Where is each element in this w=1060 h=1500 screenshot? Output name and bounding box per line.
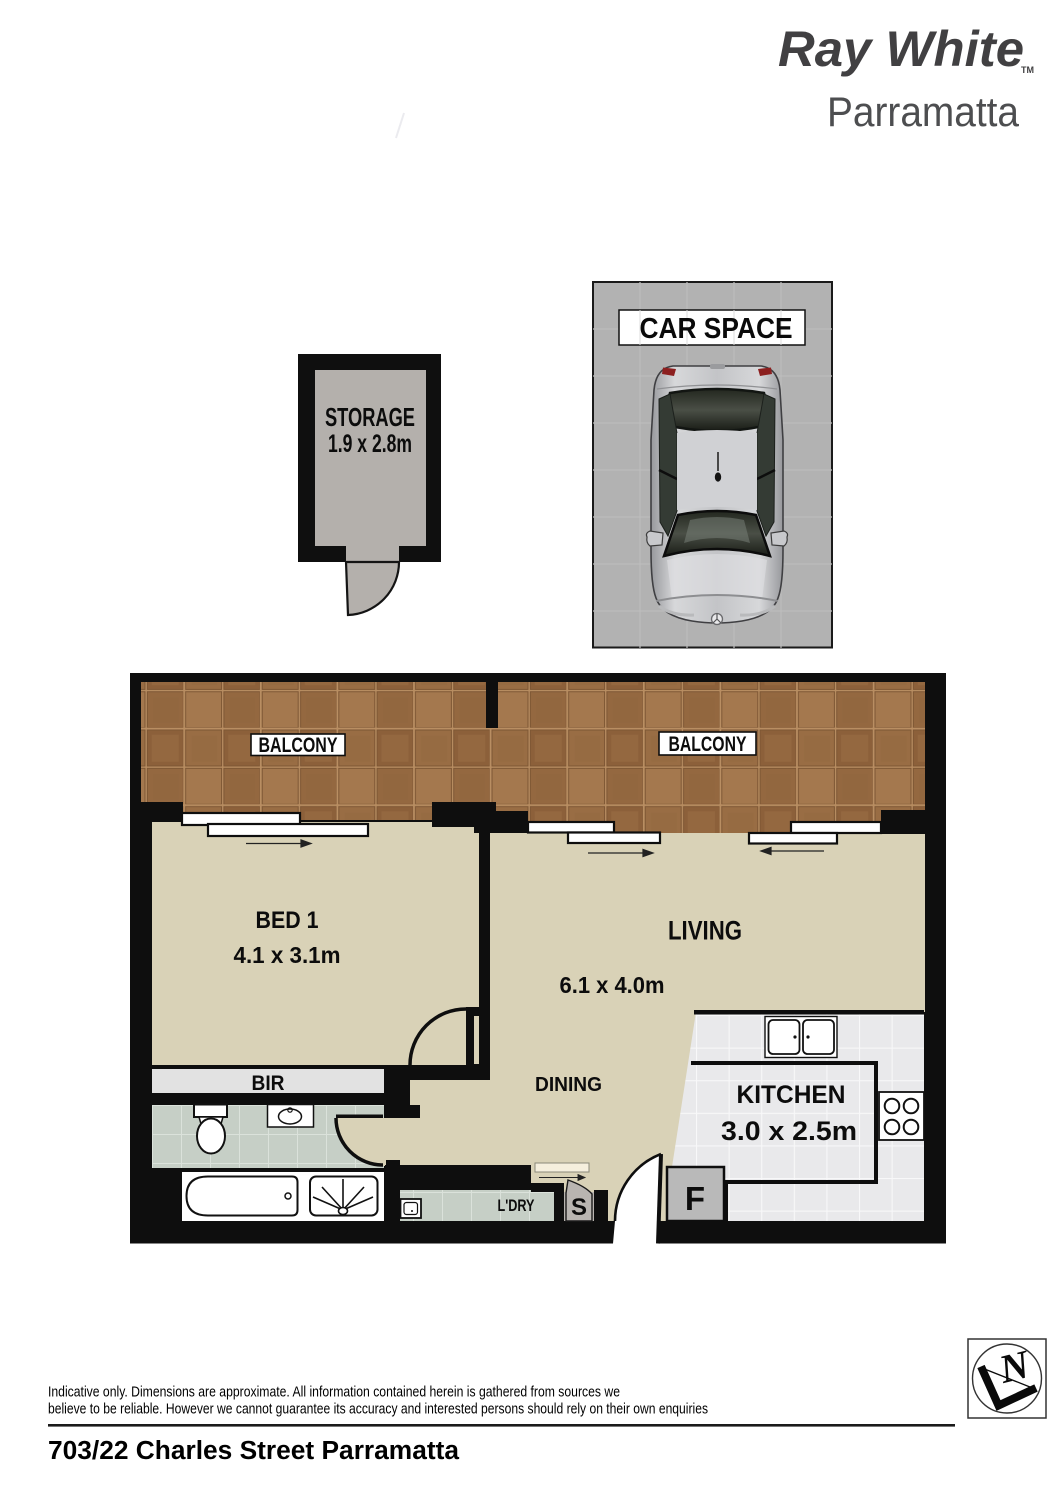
svg-text:6.1 x 4.0m: 6.1 x 4.0m <box>560 972 665 998</box>
svg-text:STORAGE: STORAGE <box>325 402 415 432</box>
svg-text:Parramatta: Parramatta <box>827 88 1020 135</box>
svg-text:LIVING: LIVING <box>668 916 742 946</box>
svg-text:BIR: BIR <box>252 1072 285 1095</box>
svg-text:BED 1: BED 1 <box>256 907 319 934</box>
svg-text:Ray White: Ray White <box>778 21 1024 77</box>
svg-text:KITCHEN: KITCHEN <box>737 1081 846 1109</box>
svg-text:Indicative only. Dimensions ar: Indicative only. Dimensions are approxim… <box>48 1385 620 1401</box>
svg-text:BALCONY: BALCONY <box>669 733 747 756</box>
svg-text:believe to be reliable. Howeve: believe to be reliable. However we canno… <box>48 1402 708 1418</box>
svg-text:DINING: DINING <box>535 1073 602 1096</box>
svg-text:703/22 Charles Street Parramat: 703/22 Charles Street Parramatta <box>48 1437 460 1465</box>
svg-text:BALCONY: BALCONY <box>259 734 338 757</box>
svg-text:3.0 x 2.5m: 3.0 x 2.5m <box>721 1116 857 1146</box>
svg-text:CAR SPACE: CAR SPACE <box>640 313 793 345</box>
svg-text:4.1 x 3.1m: 4.1 x 3.1m <box>234 942 341 968</box>
svg-text:F: F <box>685 1180 705 1217</box>
svg-text:TM: TM <box>1021 65 1034 75</box>
svg-text:S: S <box>571 1194 587 1221</box>
svg-text:L'DRY: L'DRY <box>498 1196 535 1215</box>
svg-text:1.9 x 2.8m: 1.9 x 2.8m <box>328 430 412 458</box>
